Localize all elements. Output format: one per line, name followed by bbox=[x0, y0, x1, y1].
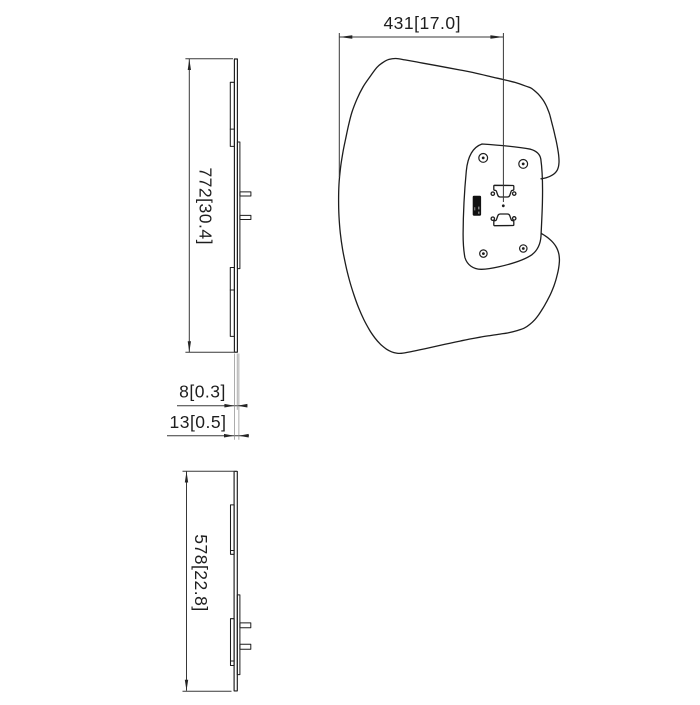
svg-text:578[22.8]: 578[22.8] bbox=[191, 534, 211, 611]
svg-text:772[30.4]: 772[30.4] bbox=[195, 167, 215, 244]
svg-text:431[17.0]: 431[17.0] bbox=[383, 13, 460, 33]
svg-text:13[0.5]: 13[0.5] bbox=[169, 412, 226, 432]
svg-text:8[0.3]: 8[0.3] bbox=[179, 381, 226, 401]
